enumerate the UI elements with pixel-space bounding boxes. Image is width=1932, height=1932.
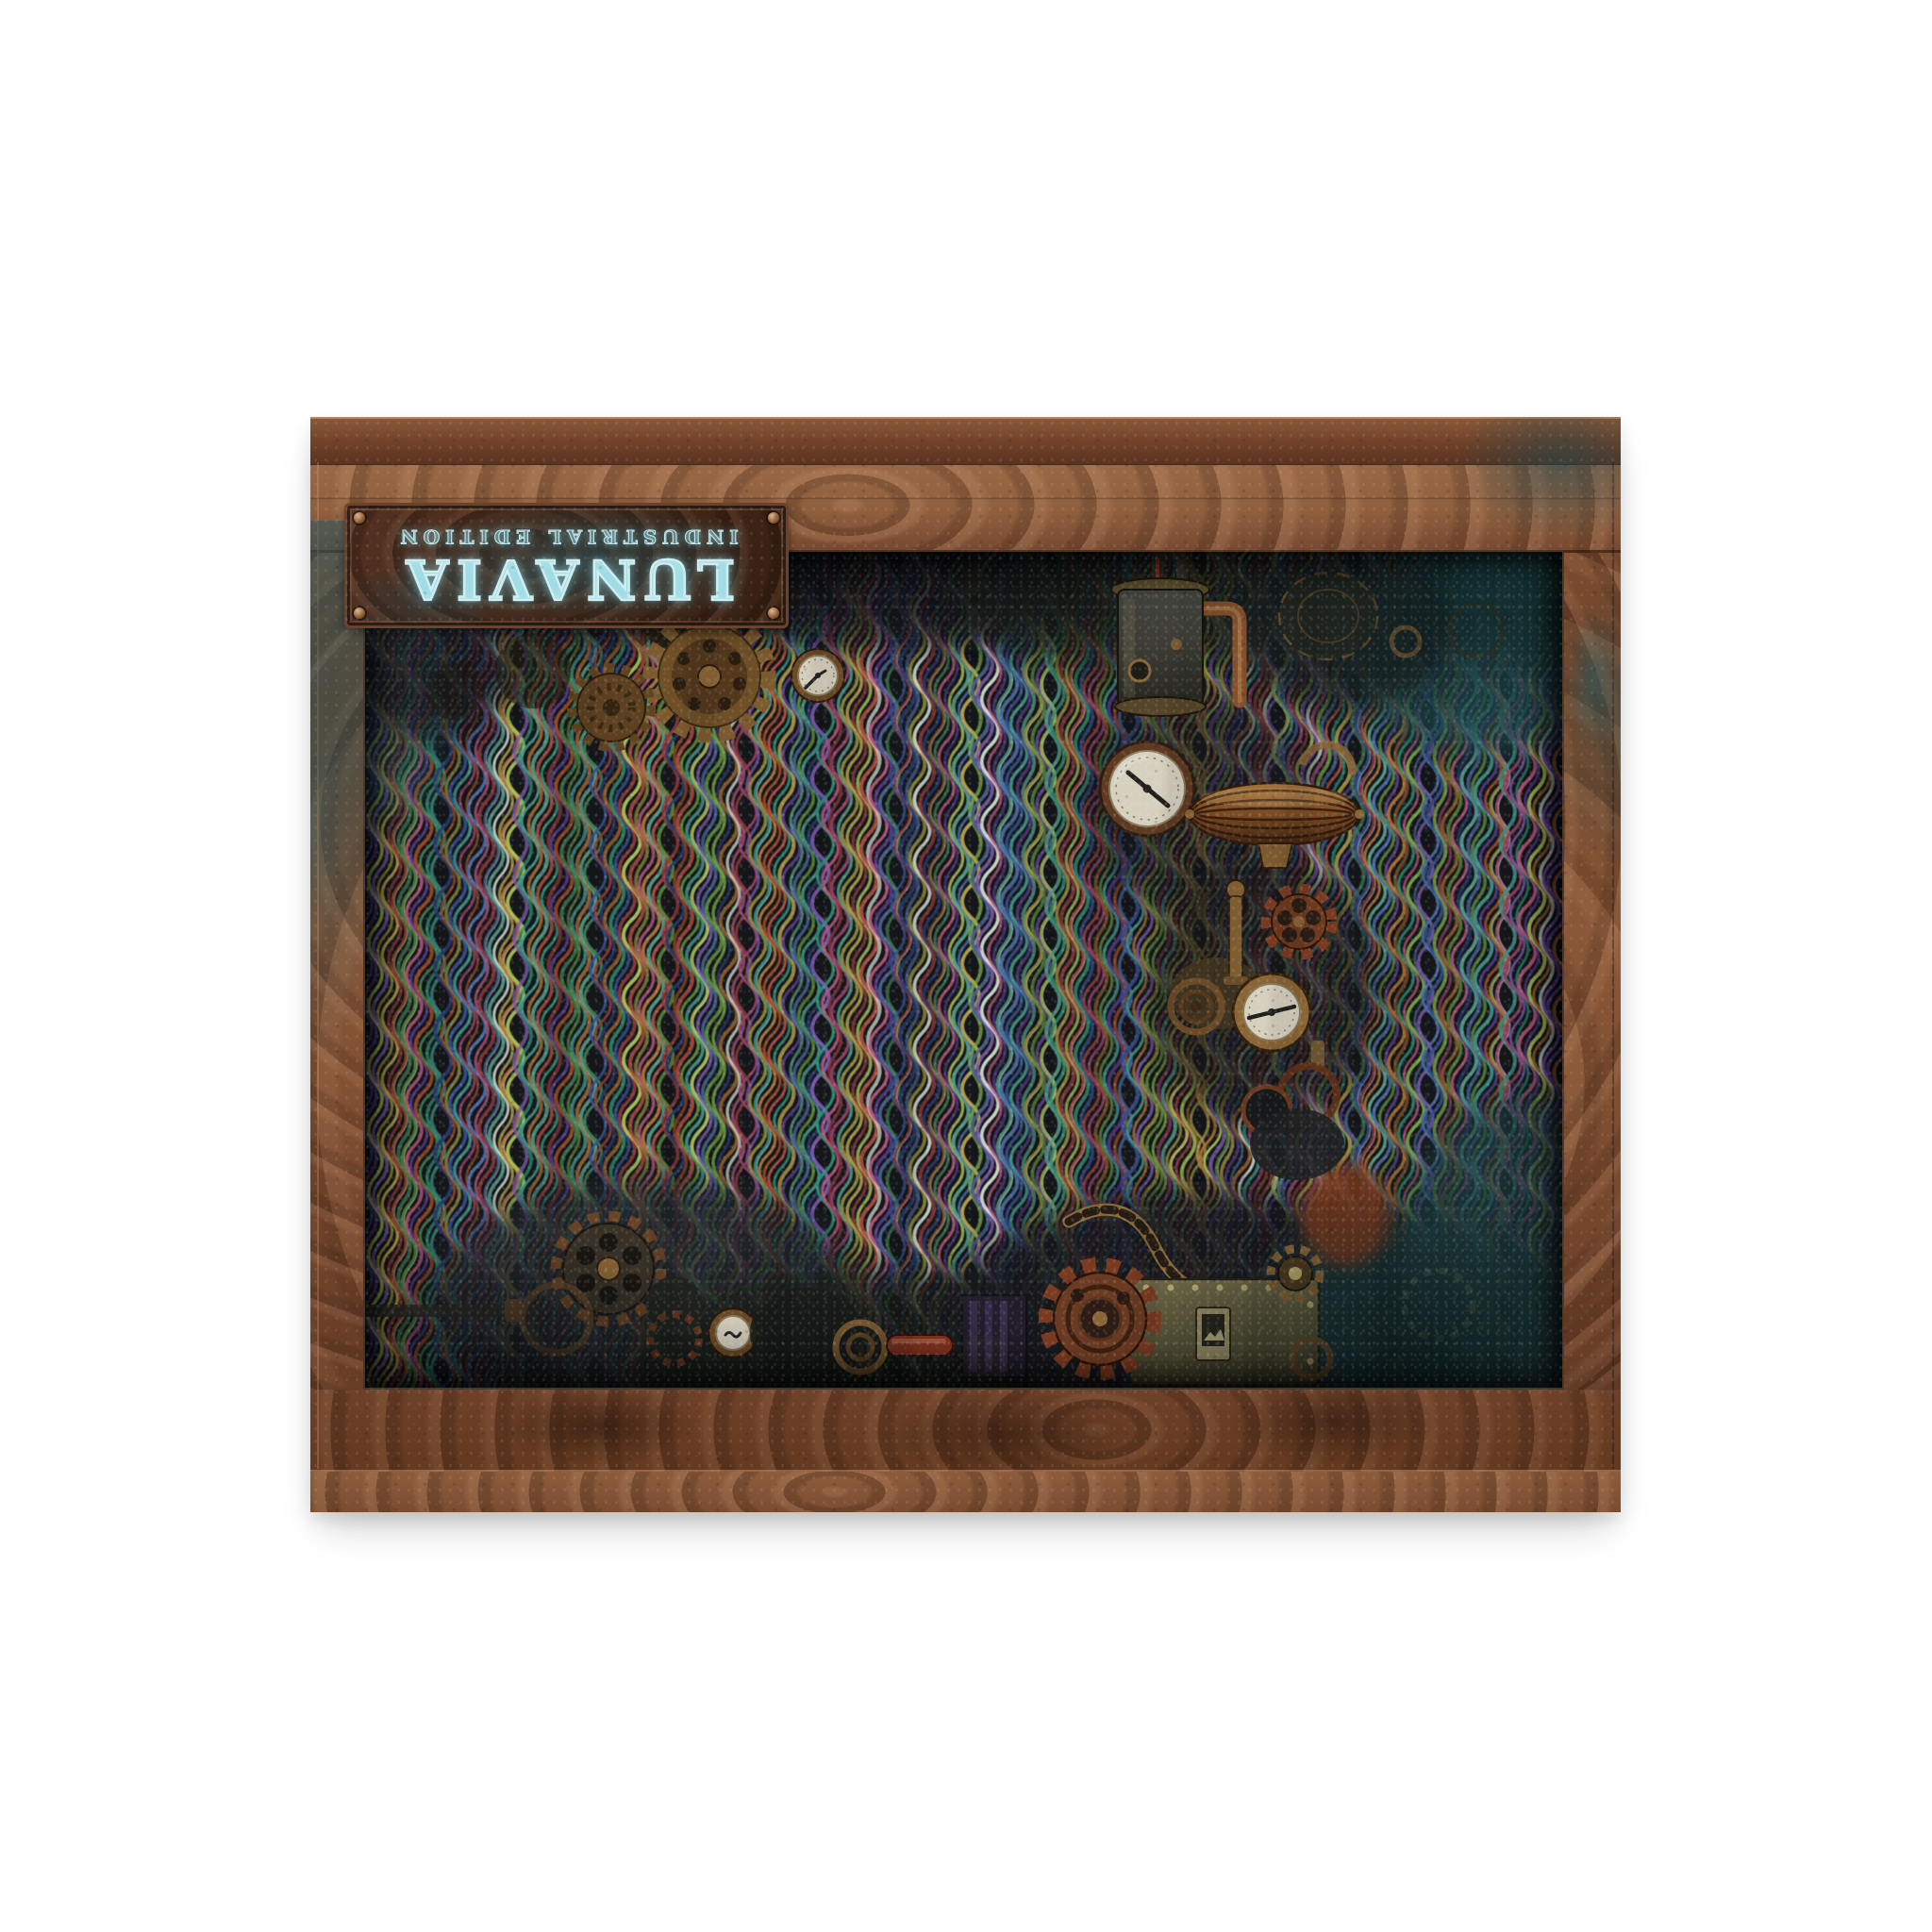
frame-left-seam: [317, 462, 319, 1469]
gondola: [1258, 843, 1292, 868]
board-interior: [363, 550, 1564, 1390]
title-plate: LUNAVIA INDUSTRIAL EDITION: [344, 503, 789, 628]
game-board: LUNAVIA INDUSTRIAL EDITION: [310, 417, 1621, 1512]
boiler-base: [1115, 697, 1206, 716]
red-cylinder: [887, 1335, 953, 1356]
gear-silhouette: [425, 663, 482, 720]
frame-bottom-inner-band: [310, 1390, 1621, 1472]
small-clock: [791, 649, 844, 702]
gear-large-brass: [651, 618, 768, 735]
frame-top-lip: [310, 417, 1621, 467]
slatted-structure: [962, 1295, 1026, 1377]
frame-right-seam: [1612, 462, 1614, 1469]
pressure-gauge-main: [1100, 741, 1194, 836]
product-photo-canvas: LUNAVIA INDUSTRIAL EDITION: [0, 0, 1932, 1932]
plate-inner: LUNAVIA INDUSTRIAL EDITION: [353, 511, 780, 620]
machinery-layer: [363, 550, 1564, 1390]
boiler-port: [1129, 660, 1150, 681]
frame-bottom-outer-band: [310, 1472, 1621, 1512]
product-edition: INDUSTRIAL EDITION: [394, 525, 738, 548]
brass-pipe: [1229, 896, 1242, 979]
gear-silhouette: [495, 633, 571, 708]
pressure-gauge-secondary: [1233, 974, 1310, 1051]
gear-small-brass: [573, 669, 650, 746]
product-title: LUNAVIA: [398, 550, 735, 605]
block-window: [1196, 1307, 1230, 1360]
